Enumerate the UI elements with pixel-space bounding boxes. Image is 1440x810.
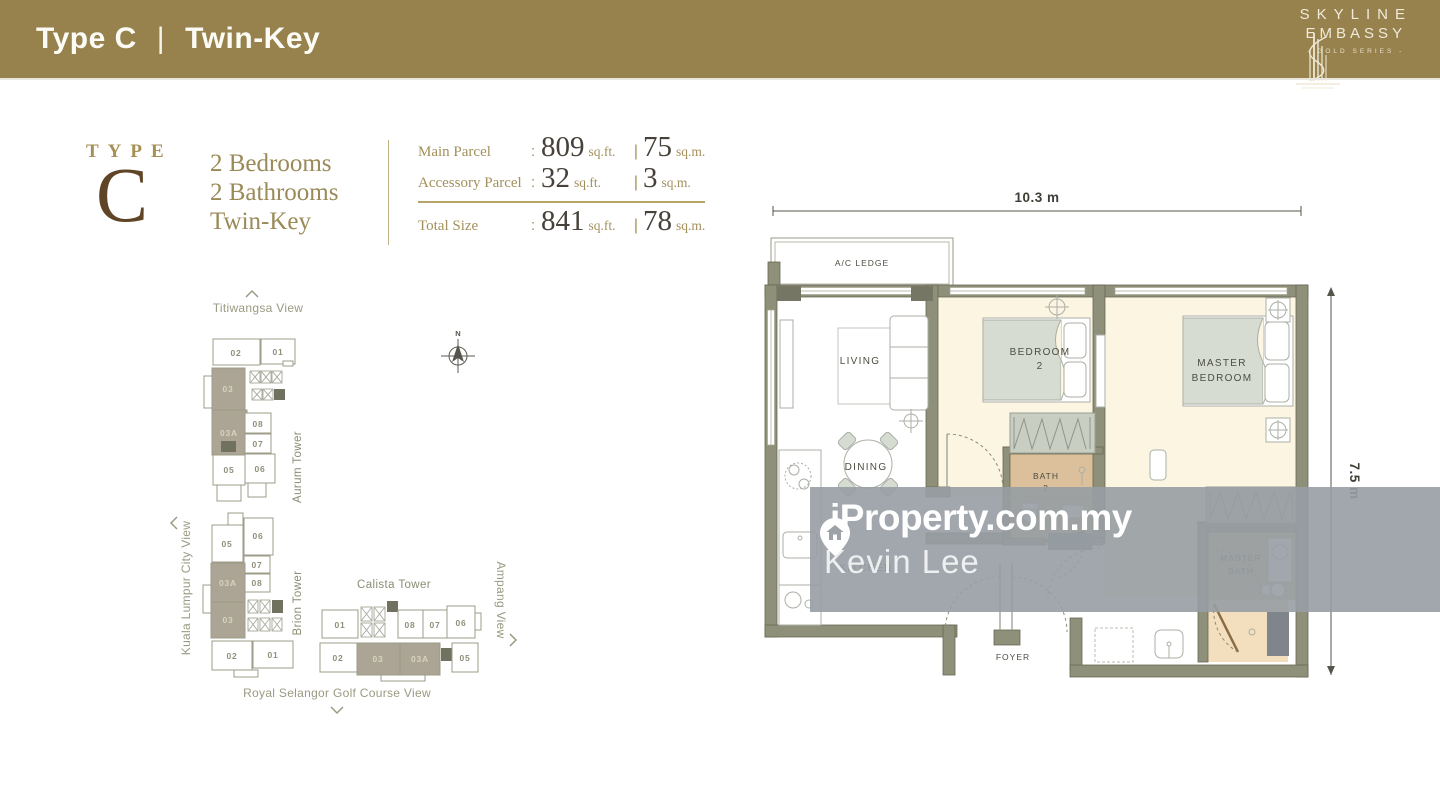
brion-unit-07: 07 — [251, 560, 262, 570]
sqm-unit: sq.m. — [676, 218, 705, 234]
brion-unit-06: 06 — [252, 531, 263, 541]
calista-tower-name: Calista Tower — [357, 579, 431, 591]
pipe: | — [629, 174, 643, 192]
brand-line1: SKYLINE — [1300, 6, 1412, 25]
aurum-tower: 02 01 03 03A 05 08 07 06 Aurum Tower — [204, 339, 304, 503]
bedroom2-label-line1: BEDROOM — [1010, 347, 1071, 358]
size-row-total: Total Size : 841sq.ft. | 78sq.m. — [418, 207, 705, 236]
calista-unit-01: 01 — [334, 620, 345, 630]
main-parcel-sqft: 809 — [541, 133, 585, 162]
feature-bathrooms: 2 Bathrooms — [210, 178, 338, 207]
watermark-brand: iProperty.com.my — [830, 497, 1132, 539]
sqm-unit: sq.m. — [662, 175, 691, 191]
aurum-unit-03: 03 — [222, 384, 233, 394]
info-vertical-divider — [388, 140, 389, 245]
brion-unit-03a: 03A — [219, 578, 237, 588]
calista-unit-07: 07 — [429, 620, 440, 630]
unit-features: 2 Bedrooms 2 Bathrooms Twin-Key — [210, 149, 338, 236]
total-size-label: Total Size — [418, 218, 531, 235]
watermark-agent: Kevin Lee — [824, 543, 1440, 581]
calista-unit-08: 08 — [404, 620, 415, 630]
view-left-label: Kuala Lumpur City View — [179, 521, 193, 655]
view-right-label: Ampang View — [494, 561, 508, 638]
page-title-type: Type C — [36, 22, 137, 56]
width-dimension: 10.3 m — [773, 190, 1301, 216]
page-title: Type C | Twin-Key — [36, 22, 320, 56]
total-size-sqm: 78 — [643, 207, 672, 236]
aurum-tower-name: Aurum Tower — [292, 431, 304, 503]
calista-tower: Calista Tower 01 08 07 06 02 03 03A 05 — [320, 579, 481, 681]
size-row-main: Main Parcel : 809sq.ft. | 75sq.m. — [418, 133, 705, 162]
ac-ledge-label: A/C LEDGE — [835, 258, 889, 268]
chevron-down-icon — [331, 707, 343, 713]
watermark-logo-row: iProperty.com.my — [810, 487, 1440, 539]
dining-label: DINING — [845, 462, 888, 473]
calista-unit-03a: 03A — [411, 654, 429, 664]
sqft-unit: sq.ft. — [589, 144, 616, 160]
chevron-right-icon — [510, 634, 516, 646]
north-compass-icon: N — [441, 329, 475, 373]
height-dimension: 7.5 m — [1327, 287, 1362, 675]
calista-unit-02: 02 — [332, 653, 343, 663]
brion-unit-02: 02 — [226, 651, 237, 661]
main-parcel-sqm: 75 — [643, 133, 672, 162]
sqft-unit: sq.ft. — [589, 218, 616, 234]
master-bedroom-label-line1: MASTER — [1197, 358, 1246, 369]
calista-unit-05: 05 — [459, 653, 470, 663]
ac-ledge: A/C LEDGE — [768, 238, 953, 288]
aurum-unit-06: 06 — [254, 464, 265, 474]
bath2-label-line1: BATH — [1033, 471, 1059, 481]
brand-logo: SKYLINE EMBASSY - GOLD SERIES - — [1290, 6, 1412, 56]
sqm-unit: sq.m. — [676, 144, 705, 160]
ceiling-fan-icon — [1266, 298, 1290, 322]
title-separator: | — [157, 22, 165, 56]
accessory-parcel-label: Accessory Parcel — [418, 175, 531, 192]
aurum-unit-08: 08 — [252, 419, 263, 429]
size-row-accessory: Accessory Parcel : 32sq.ft. | 3sq.m. — [418, 164, 691, 193]
brion-unit-08: 08 — [251, 578, 262, 588]
calista-unit-03: 03 — [372, 654, 383, 664]
type-letter: C — [96, 156, 148, 234]
chevron-left-icon — [171, 517, 177, 529]
brion-tower-name: Brion Tower — [292, 571, 304, 636]
bath-cabinet — [1267, 612, 1289, 656]
ceiling-fan-icon — [1266, 418, 1290, 442]
brion-unit-03: 03 — [222, 615, 233, 625]
feature-bedrooms: 2 Bedrooms — [210, 149, 338, 178]
sqft-unit: sq.ft. — [574, 175, 601, 191]
width-dimension-label: 10.3 m — [1014, 190, 1059, 205]
bedroom2-label-line2: 2 — [1037, 361, 1044, 372]
colon: : — [531, 174, 541, 191]
living-label: LIVING — [840, 356, 881, 367]
page-title-key: Twin-Key — [185, 22, 320, 56]
colon: : — [531, 217, 541, 234]
colon: : — [531, 143, 541, 160]
brion-unit-05: 05 — [221, 539, 232, 549]
floorplan-brochure-page: Type C | Twin-Key — [0, 0, 1440, 810]
size-total-divider — [418, 201, 705, 203]
site-plan: Titiwangsa View Kuala Lumpur City View A… — [150, 280, 530, 725]
watermark-band: iProperty.com.my Kevin Lee — [810, 487, 1440, 612]
chevron-up-icon — [246, 291, 258, 297]
aurum-unit-01: 01 — [272, 347, 283, 357]
aurum-unit-05: 05 — [223, 465, 234, 475]
calista-unit-06: 06 — [455, 618, 466, 628]
header-bar: Type C | Twin-Key — [0, 0, 1440, 78]
accessory-parcel-sqm: 3 — [643, 164, 658, 193]
brion-tower: 05 06 07 08 03A 03 02 01 Brion Tower — [203, 513, 304, 677]
header-divider — [0, 78, 1440, 80]
pipe: | — [629, 143, 643, 161]
feature-twinkey: Twin-Key — [210, 207, 338, 236]
foyer-label: FOYER — [996, 652, 1030, 662]
master-bedroom-label-line2: BEDROOM — [1192, 373, 1253, 384]
compass-n: N — [455, 329, 460, 338]
main-parcel-label: Main Parcel — [418, 144, 531, 161]
view-top-label: Titiwangsa View — [213, 301, 304, 315]
aurum-unit-02: 02 — [230, 348, 241, 358]
pipe: | — [629, 217, 643, 235]
aurum-unit-03a: 03A — [220, 428, 238, 438]
total-size-sqft: 841 — [541, 207, 585, 236]
aurum-unit-07: 07 — [252, 439, 263, 449]
view-bottom-label: Royal Selangor Golf Course View — [243, 686, 431, 700]
brion-unit-01: 01 — [267, 650, 278, 660]
accessory-parcel-sqft: 32 — [541, 164, 570, 193]
